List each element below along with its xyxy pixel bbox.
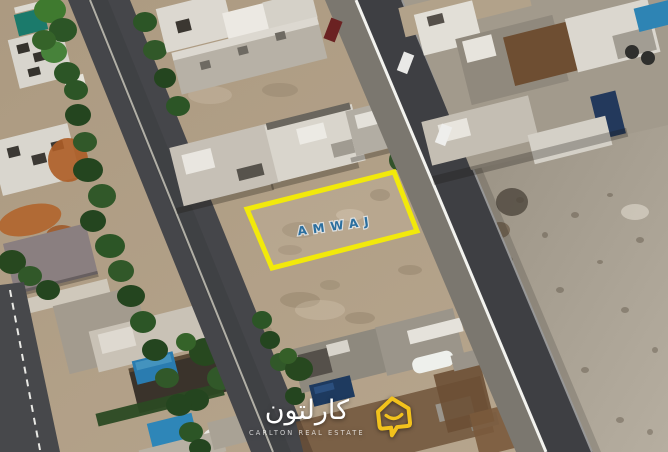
satellite-scene: AMWAJ <box>0 0 668 452</box>
satellite-image: AMWAJ كارلتون CARLTON REAL ESTATE <box>0 0 668 452</box>
debris-pile <box>496 188 528 216</box>
